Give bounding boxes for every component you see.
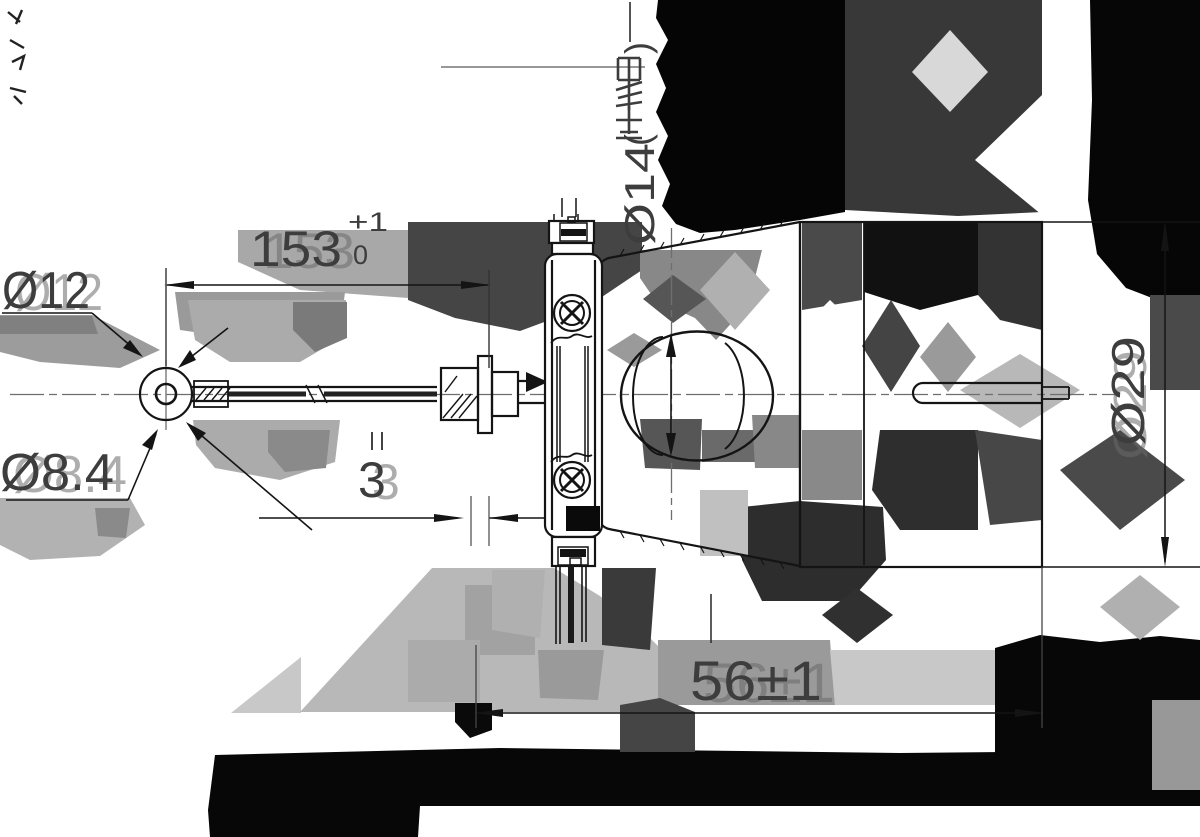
svg-text:0: 0 xyxy=(353,240,368,270)
svg-text:Ø12: Ø12 xyxy=(2,262,90,320)
svg-text:Ø8.4: Ø8.4 xyxy=(0,444,114,502)
svg-text:153: 153 xyxy=(250,221,342,277)
svg-text:56±1: 56±1 xyxy=(690,649,822,712)
svg-text:(: ( xyxy=(617,134,658,146)
svg-text:+1: +1 xyxy=(348,207,388,237)
svg-text:Ø29: Ø29 xyxy=(1102,336,1154,446)
svg-text:Ø14: Ø14 xyxy=(616,143,663,245)
svg-text:): ) xyxy=(617,42,658,54)
svg-text:3: 3 xyxy=(358,452,386,508)
